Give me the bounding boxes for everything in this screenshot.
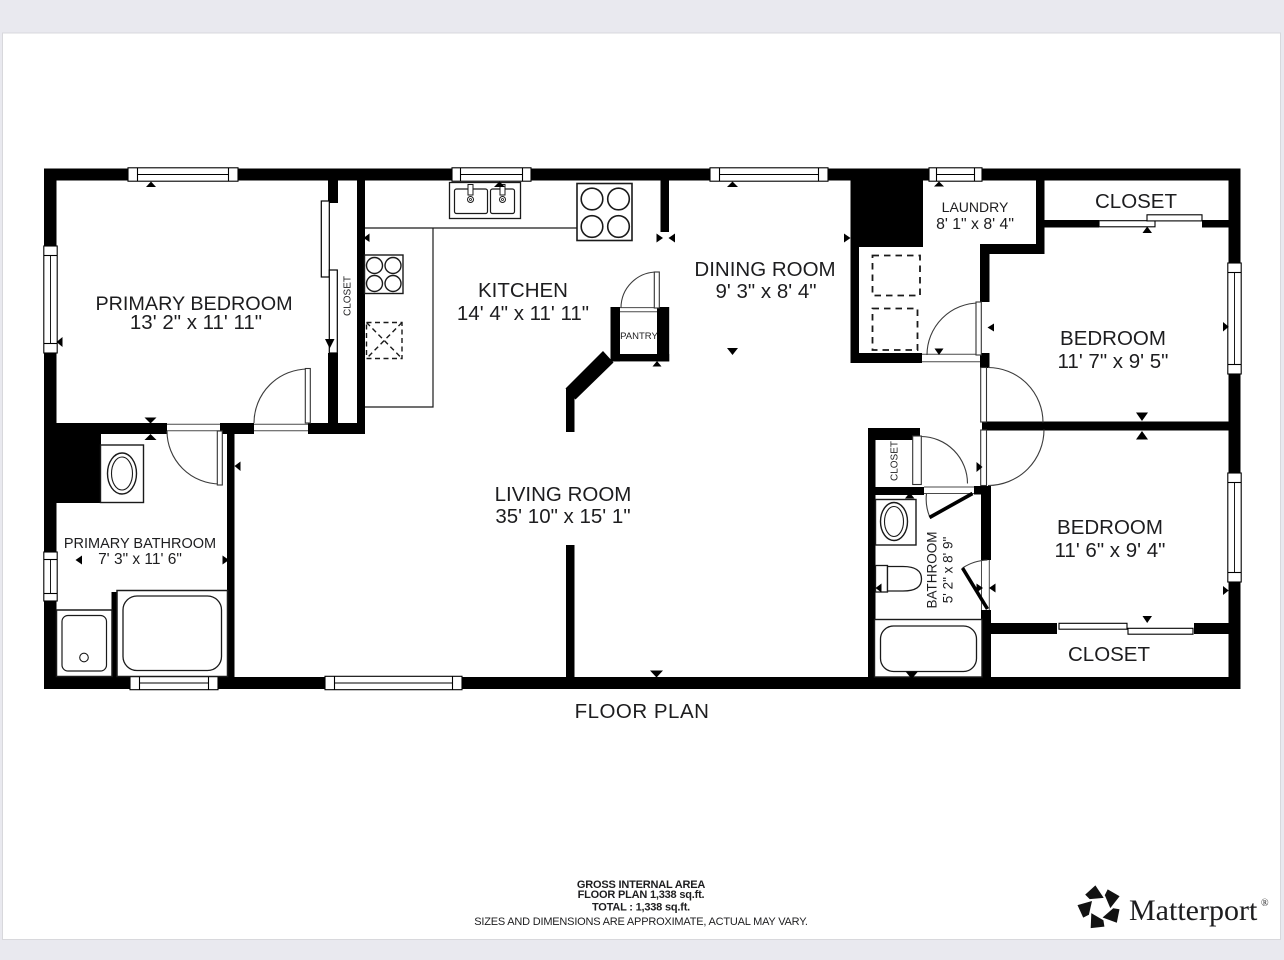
svg-text:DINING ROOM: DINING ROOM (694, 258, 835, 281)
svg-text:7' 3" x 11' 6": 7' 3" x 11' 6" (98, 551, 182, 568)
svg-text:11' 6" x 9' 4": 11' 6" x 9' 4" (1055, 539, 1166, 562)
svg-text:8' 1" x 8' 4": 8' 1" x 8' 4" (936, 216, 1014, 233)
svg-text:13' 2" x 11' 11": 13' 2" x 11' 11" (130, 311, 262, 334)
svg-text:KITCHEN: KITCHEN (478, 279, 568, 302)
svg-text:PANTRY: PANTRY (620, 331, 658, 342)
svg-text:SIZES AND DIMENSIONS ARE APPRO: SIZES AND DIMENSIONS ARE APPROXIMATE, AC… (474, 916, 808, 928)
svg-text:Matterport: Matterport (1129, 894, 1258, 927)
svg-text:LAUNDRY: LAUNDRY (942, 199, 1009, 215)
svg-text:LIVING ROOM: LIVING ROOM (495, 483, 632, 506)
svg-text:FLOOR PLAN 1,338 sq.ft.: FLOOR PLAN 1,338 sq.ft. (578, 889, 705, 901)
svg-text:5' 2" x 8' 9": 5' 2" x 8' 9" (941, 537, 956, 604)
svg-text:PRIMARY BATHROOM: PRIMARY BATHROOM (64, 536, 216, 552)
svg-text:BEDROOM: BEDROOM (1060, 327, 1166, 350)
svg-text:BATHROOM: BATHROOM (925, 532, 940, 609)
svg-text:FLOOR PLAN: FLOOR PLAN (575, 700, 710, 723)
svg-text:11' 7" x 9' 5": 11' 7" x 9' 5" (1058, 350, 1169, 373)
svg-text:14' 4" x 11' 11": 14' 4" x 11' 11" (457, 302, 589, 325)
svg-text:CLOSET: CLOSET (1095, 190, 1177, 213)
svg-text:CLOSET: CLOSET (343, 276, 354, 316)
svg-text:9' 3" x 8' 4": 9' 3" x 8' 4" (715, 280, 816, 303)
svg-text:BEDROOM: BEDROOM (1057, 516, 1163, 539)
svg-text:TOTAL : 1,338 sq.ft.: TOTAL : 1,338 sq.ft. (592, 902, 690, 914)
svg-text:CLOSET: CLOSET (1068, 643, 1150, 666)
svg-text:®: ® (1261, 898, 1269, 909)
svg-text:35' 10" x 15' 1": 35' 10" x 15' 1" (495, 505, 630, 528)
svg-text:CLOSET: CLOSET (890, 441, 901, 481)
